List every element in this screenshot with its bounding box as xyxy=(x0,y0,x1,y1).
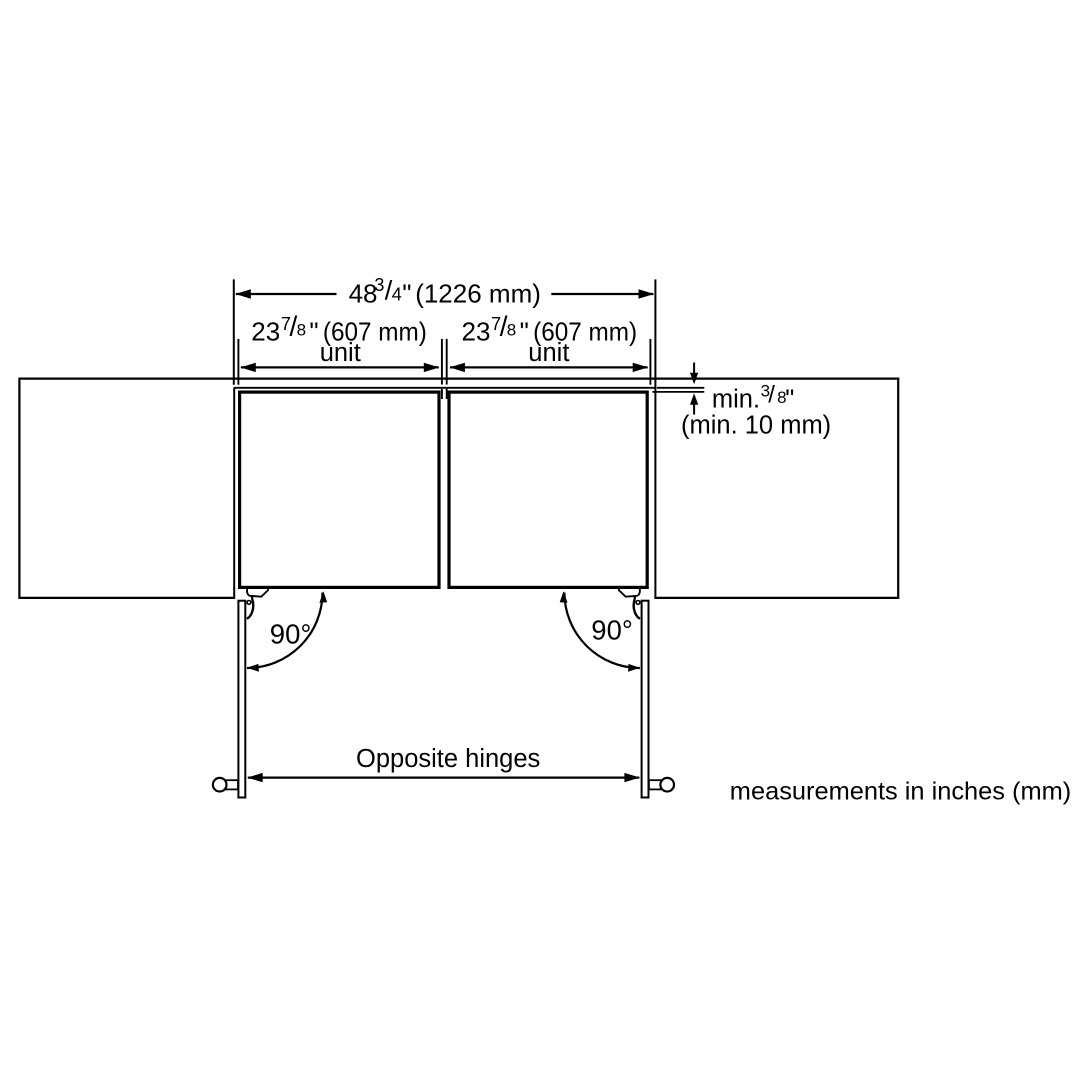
svg-text:23: 23 xyxy=(462,317,491,347)
svg-text:90°: 90° xyxy=(591,615,633,646)
svg-text:48: 48 xyxy=(349,279,378,309)
svg-text:8: 8 xyxy=(507,321,516,340)
svg-text:Opposite hinges: Opposite hinges xyxy=(356,745,540,773)
svg-text:3: 3 xyxy=(374,275,384,295)
svg-text:8: 8 xyxy=(297,321,306,340)
svg-text:unit: unit xyxy=(320,339,361,367)
svg-text:(min. 10 mm): (min. 10 mm) xyxy=(681,411,831,439)
svg-text:": " xyxy=(785,386,794,414)
svg-text:/: / xyxy=(768,381,775,408)
svg-text:(1226 mm): (1226 mm) xyxy=(415,279,541,309)
svg-text:unit: unit xyxy=(528,339,569,367)
svg-text:23: 23 xyxy=(251,317,280,347)
svg-text:": " xyxy=(309,317,318,347)
svg-text:90°: 90° xyxy=(270,619,312,650)
svg-text:": " xyxy=(402,279,411,309)
svg-text:4: 4 xyxy=(392,285,402,305)
svg-text:measurements in inches (mm): measurements in inches (mm) xyxy=(730,778,1071,806)
svg-text:min.: min. xyxy=(712,386,760,414)
